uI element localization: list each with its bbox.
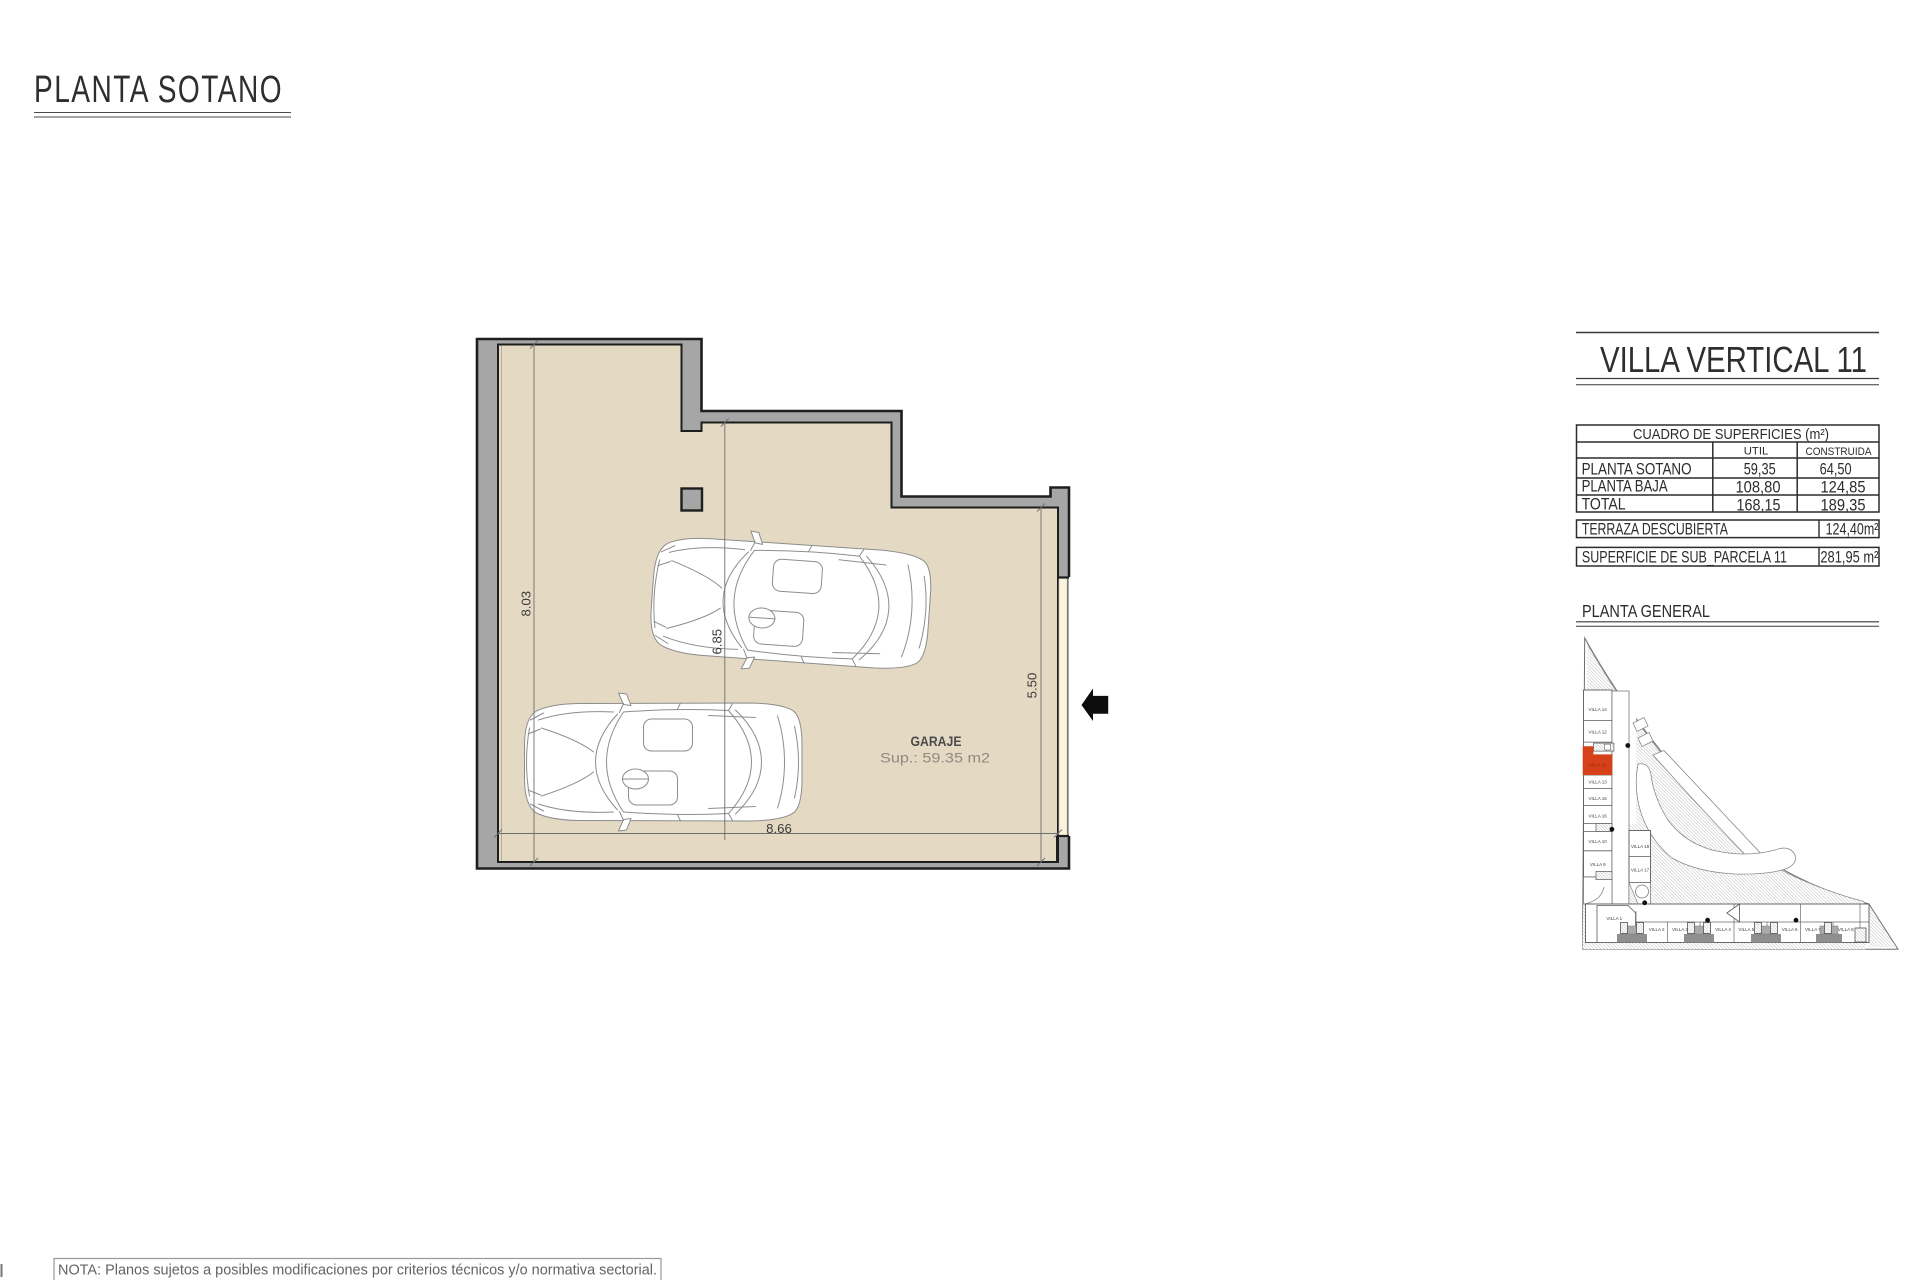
svg-text:VILLA 5: VILLA 5 <box>1738 927 1754 932</box>
svg-text:124,40m²: 124,40m² <box>1826 521 1879 539</box>
svg-text:VILLA 6: VILLA 6 <box>1782 927 1798 932</box>
svg-text:VILLA 12: VILLA 12 <box>1589 730 1608 735</box>
svg-text:VILLA 13: VILLA 13 <box>1589 780 1608 785</box>
svg-text:TOTAL: TOTAL <box>1582 496 1626 514</box>
svg-text:108,80: 108,80 <box>1736 479 1781 497</box>
svg-text:189,35: 189,35 <box>1821 497 1866 515</box>
svg-text:SUPERFICIE DE SUB_PARCELA 11: SUPERFICIE DE SUB_PARCELA 11 <box>1582 549 1787 567</box>
svg-text:6.85: 6.85 <box>710 629 725 655</box>
svg-text:VILLA 4: VILLA 4 <box>1715 927 1731 932</box>
svg-text:VILLA 3: VILLA 3 <box>1672 927 1688 932</box>
svg-text:TERRAZA DESCUBIERTA: TERRAZA DESCUBIERTA <box>1582 521 1728 539</box>
svg-text:Sup.: 59.35 m2: Sup.: 59.35 m2 <box>880 751 990 766</box>
svg-text:VILLA 18: VILLA 18 <box>1631 844 1650 849</box>
svg-text:VILLA 9: VILLA 9 <box>1590 862 1606 867</box>
svg-text:VILLA 11: VILLA 11 <box>1589 763 1607 768</box>
svg-text:59,35: 59,35 <box>1744 461 1776 479</box>
svg-text:VILLA 8: VILLA 8 <box>1838 927 1854 932</box>
svg-text:124,85: 124,85 <box>1821 479 1866 497</box>
svg-text:281,95 m²: 281,95 m² <box>1820 549 1878 567</box>
svg-text:8.03: 8.03 <box>519 591 534 617</box>
svg-text:CONSTRUIDA: CONSTRUIDA <box>1806 446 1873 458</box>
svg-text:NOTA: Planos sujetos a posible: NOTA: Planos sujetos a posibles modifica… <box>58 1262 657 1279</box>
svg-text:VILLA 10: VILLA 10 <box>1589 839 1608 844</box>
svg-text:UTIL: UTIL <box>1744 446 1769 458</box>
svg-text:64,50: 64,50 <box>1820 461 1852 479</box>
svg-text:CUADRO DE SUPERFICIES (m²): CUADRO DE SUPERFICIES (m²) <box>1633 427 1829 443</box>
svg-text:168,15: 168,15 <box>1737 497 1781 515</box>
svg-text:GARAJE: GARAJE <box>911 733 962 749</box>
svg-text:VILLA 17: VILLA 17 <box>1631 868 1650 873</box>
svg-text:VILLA VERTICAL 11: VILLA VERTICAL 11 <box>1600 339 1867 380</box>
svg-text:VILLA 2: VILLA 2 <box>1649 927 1665 932</box>
svg-text:VILLA 15: VILLA 15 <box>1589 796 1608 801</box>
svg-text:VILLA 16: VILLA 16 <box>1589 814 1608 819</box>
svg-text:PLANTA SOTANO: PLANTA SOTANO <box>34 69 283 111</box>
svg-text:PLANTA BAJA: PLANTA BAJA <box>1582 478 1668 496</box>
svg-text:PLANTA SOTANO: PLANTA SOTANO <box>1582 461 1692 479</box>
svg-text:VILLA 7: VILLA 7 <box>1805 927 1821 932</box>
svg-text:5.50: 5.50 <box>1025 673 1040 699</box>
svg-text:VILLA 14: VILLA 14 <box>1589 707 1608 712</box>
svg-text:8.66: 8.66 <box>766 821 792 836</box>
svg-text:VILLA 1: VILLA 1 <box>1606 916 1622 921</box>
svg-text:PLANTA GENERAL: PLANTA GENERAL <box>1582 601 1710 621</box>
